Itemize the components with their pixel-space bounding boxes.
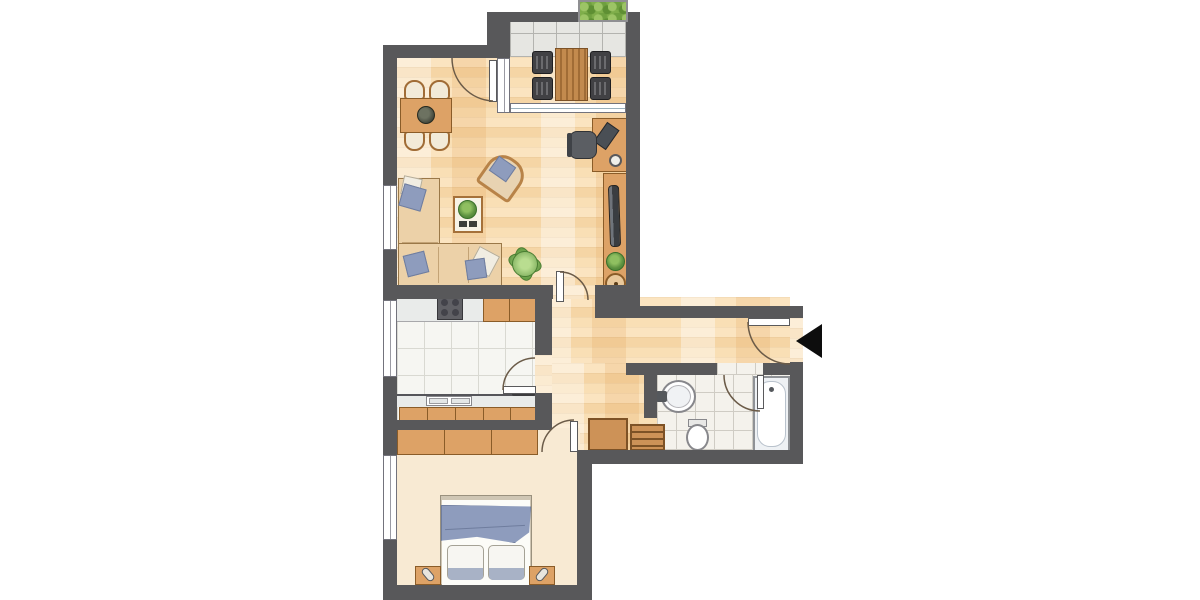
kitchen-window [383, 300, 397, 377]
bedroom-wardrobe [397, 428, 538, 455]
office-chair-back [567, 133, 572, 157]
bedroom-door [570, 421, 578, 452]
bed-pillow [488, 545, 525, 580]
cabinet-divider [509, 296, 510, 321]
balcony-chair [532, 51, 553, 74]
office-chair [569, 131, 597, 159]
floor-plan [0, 0, 1200, 600]
wall-bedroom-bottom [383, 585, 592, 600]
coffee-table-plant [458, 200, 477, 219]
living-room-window [383, 185, 397, 250]
wall-bedroom-right [577, 452, 592, 600]
sideboard-plant [606, 252, 625, 271]
bed-pillow [447, 545, 484, 580]
kitchen-door [503, 386, 536, 394]
shoe-rack [630, 424, 665, 451]
balcony-door [489, 60, 497, 102]
wall-living-bottom-right [595, 285, 640, 318]
wall-bathroom-left [644, 363, 657, 418]
tv [608, 185, 621, 247]
wall-right-upper [626, 12, 640, 318]
sofa-seam [402, 242, 438, 243]
balcony-chair [590, 51, 611, 74]
living-room-door [556, 271, 564, 302]
wall-kitchen-right-upper [535, 285, 552, 355]
hall-cabinet [588, 418, 628, 451]
wall-right-entrance-lower [790, 362, 803, 464]
bedroom-window [383, 455, 397, 540]
dining-chair [429, 80, 450, 100]
balcony-chair [590, 77, 611, 100]
desk-lamp [609, 154, 622, 167]
dining-chair [429, 131, 450, 151]
toilet-bowl [686, 424, 709, 451]
wall-kitchen-bedroom [383, 420, 550, 430]
kitchen-base-cabinets [399, 407, 537, 421]
sofa-seam [438, 247, 439, 283]
bathroom-sink-inner [666, 385, 691, 408]
wall-bathroom-top-right [763, 363, 790, 375]
dining-chair [404, 80, 425, 100]
entrance-arrow-icon [796, 324, 822, 358]
kitchen-sink [426, 396, 472, 406]
wall-hall-bath-bottom [577, 450, 803, 464]
remote-control [459, 221, 467, 227]
table-centerpiece [417, 106, 435, 124]
kitchen-door-threshold [535, 355, 552, 395]
bathroom-door [757, 375, 764, 409]
remote-control [469, 221, 477, 227]
sink-tap [656, 391, 667, 402]
wall-living-bottom-left [383, 285, 553, 299]
balcony-planter [578, 0, 628, 22]
balcony-table [555, 48, 588, 101]
bathtub-drain [769, 387, 774, 392]
floor-plant [506, 246, 544, 282]
balcony-window [510, 103, 626, 113]
balcony-chair [532, 77, 553, 100]
balcony-door-frame [497, 58, 510, 113]
bathroom-door-threshold [717, 363, 763, 375]
dining-chair [404, 131, 425, 151]
bed-blanket [441, 505, 531, 543]
entrance-door [748, 318, 790, 326]
sofa-pillow-blue [465, 258, 488, 281]
wall-corridor-top [626, 306, 803, 318]
wall-bathroom-top-left [626, 363, 717, 375]
